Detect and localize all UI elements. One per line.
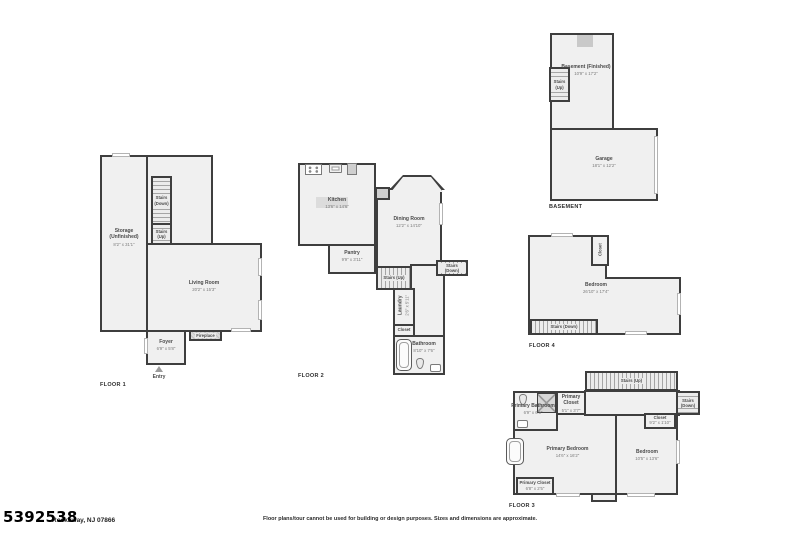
floor1-stairs-up: Stairs (Up) xyxy=(151,223,172,245)
stairs-label: Stairs (Down) xyxy=(438,263,466,273)
floor2-kitchen-label: Kitchen 13'6" x 14'6" xyxy=(300,197,374,210)
floor1-foyer-label: Foyer 6'9" x 5'8" xyxy=(147,339,185,352)
floor3-tag: FLOOR 3 xyxy=(509,503,535,509)
fireplace: Fireplace xyxy=(189,330,222,341)
window xyxy=(439,203,443,225)
floor2-laundry-label: Laundry 2'6" x 5'11" xyxy=(398,288,411,322)
floor3-stairs-up: Stairs (Up) xyxy=(585,371,678,391)
utility-unit xyxy=(577,35,593,47)
window xyxy=(551,233,573,237)
stairs-label: Stairs (Down) xyxy=(550,324,579,329)
floor1-tag: FLOOR 1 xyxy=(100,382,126,388)
stairs-label: Stairs (Up) xyxy=(382,275,405,280)
floor2-dining-label: Dining Room 12'2" x 14'10" xyxy=(380,216,438,229)
floor3-closet-label: Closet 9'2" x 1'10" xyxy=(645,415,675,426)
floor2-stairs-down: Stairs (Down) xyxy=(436,260,468,276)
floor1-living-label: Living Room 20'2" x 15'3" xyxy=(159,280,249,293)
floor2-bathroom-label: Bathroom 8'10" x 7'6" xyxy=(404,341,444,354)
entry-arrow-icon xyxy=(155,366,163,372)
floor4-stairs-down: Stairs (Down) xyxy=(530,319,598,335)
listing-number: 5392538 xyxy=(3,508,77,526)
floor2-closet-label: Closet xyxy=(393,327,415,332)
floorplan-image: Stairs (Down) Stairs (Up) Fireplace Stor… xyxy=(0,0,800,533)
stairs-label: Stairs (Up) xyxy=(551,79,568,89)
window xyxy=(677,293,681,315)
basement-tag: BASEMENT xyxy=(549,204,582,210)
floor4-tag: FLOOR 4 xyxy=(529,343,555,349)
disclaimer-text: Floor plans/tour cannot be used for buil… xyxy=(0,516,800,522)
floor2-pantry-label: Pantry 9'9" x 3'11" xyxy=(330,250,374,263)
chimney-chase xyxy=(375,187,390,200)
floor3-primary-bathroom-label: Primary Bathroom 6'9" x 6'5" xyxy=(511,403,555,416)
floor1-entry-label: Entry xyxy=(146,374,172,380)
sink-icon xyxy=(430,364,441,372)
window xyxy=(231,328,251,332)
floor1-stairs-down: Stairs (Down) xyxy=(151,176,172,225)
basement-finished-label: Basement (Finished) 10'9" x 17'2" xyxy=(560,64,612,77)
window xyxy=(625,331,647,335)
dining-bay-floor xyxy=(391,177,443,192)
floor3-bedroom-label: Bedroom 10'5" x 13'6" xyxy=(618,449,676,462)
floor2-stairs-up: Stairs (Up) xyxy=(376,266,412,290)
window xyxy=(258,300,262,320)
window xyxy=(676,440,680,464)
fireplace-label: Fireplace xyxy=(195,333,215,338)
window xyxy=(556,493,580,497)
floor3-primary-closet-top-label: Primary Closet 5'1" x 3'7" xyxy=(556,394,586,413)
floor4-bedroom-label: Bedroom 26'10" x 17'4" xyxy=(556,282,636,295)
floor4-closet-label: Closet xyxy=(597,237,602,263)
floor2-tag: FLOOR 2 xyxy=(298,373,324,379)
window xyxy=(258,258,262,276)
window xyxy=(627,493,655,497)
sink-icon xyxy=(517,420,528,428)
floor1-storage-label: Storage (Unfinished) 8'2" x 31'1" xyxy=(102,228,146,247)
floor3-stairs-down: Stairs (Down) xyxy=(676,391,700,415)
stove-icon xyxy=(305,164,322,175)
stairs-label: Stairs (Down) xyxy=(678,398,698,408)
window xyxy=(112,153,130,157)
stairs-label: Stairs (Up) xyxy=(620,378,643,383)
stairs-label: Stairs (Up) xyxy=(153,229,170,239)
garage-door xyxy=(654,136,658,194)
floor3-primary-bedroom-label: Primary Bedroom 14'6" x 16'2" xyxy=(520,446,615,459)
basement-garage-label: Garage 18'1" x 12'2" xyxy=(569,156,639,169)
kitchen-sink-icon xyxy=(329,164,342,173)
stairs-label: Stairs (Down) xyxy=(153,195,170,205)
floor3-primary-closet-bottom-label: Primary Closet 6'8" x 2'5" xyxy=(517,480,553,491)
floor3-bay xyxy=(591,493,617,502)
refrigerator-icon xyxy=(347,163,357,175)
